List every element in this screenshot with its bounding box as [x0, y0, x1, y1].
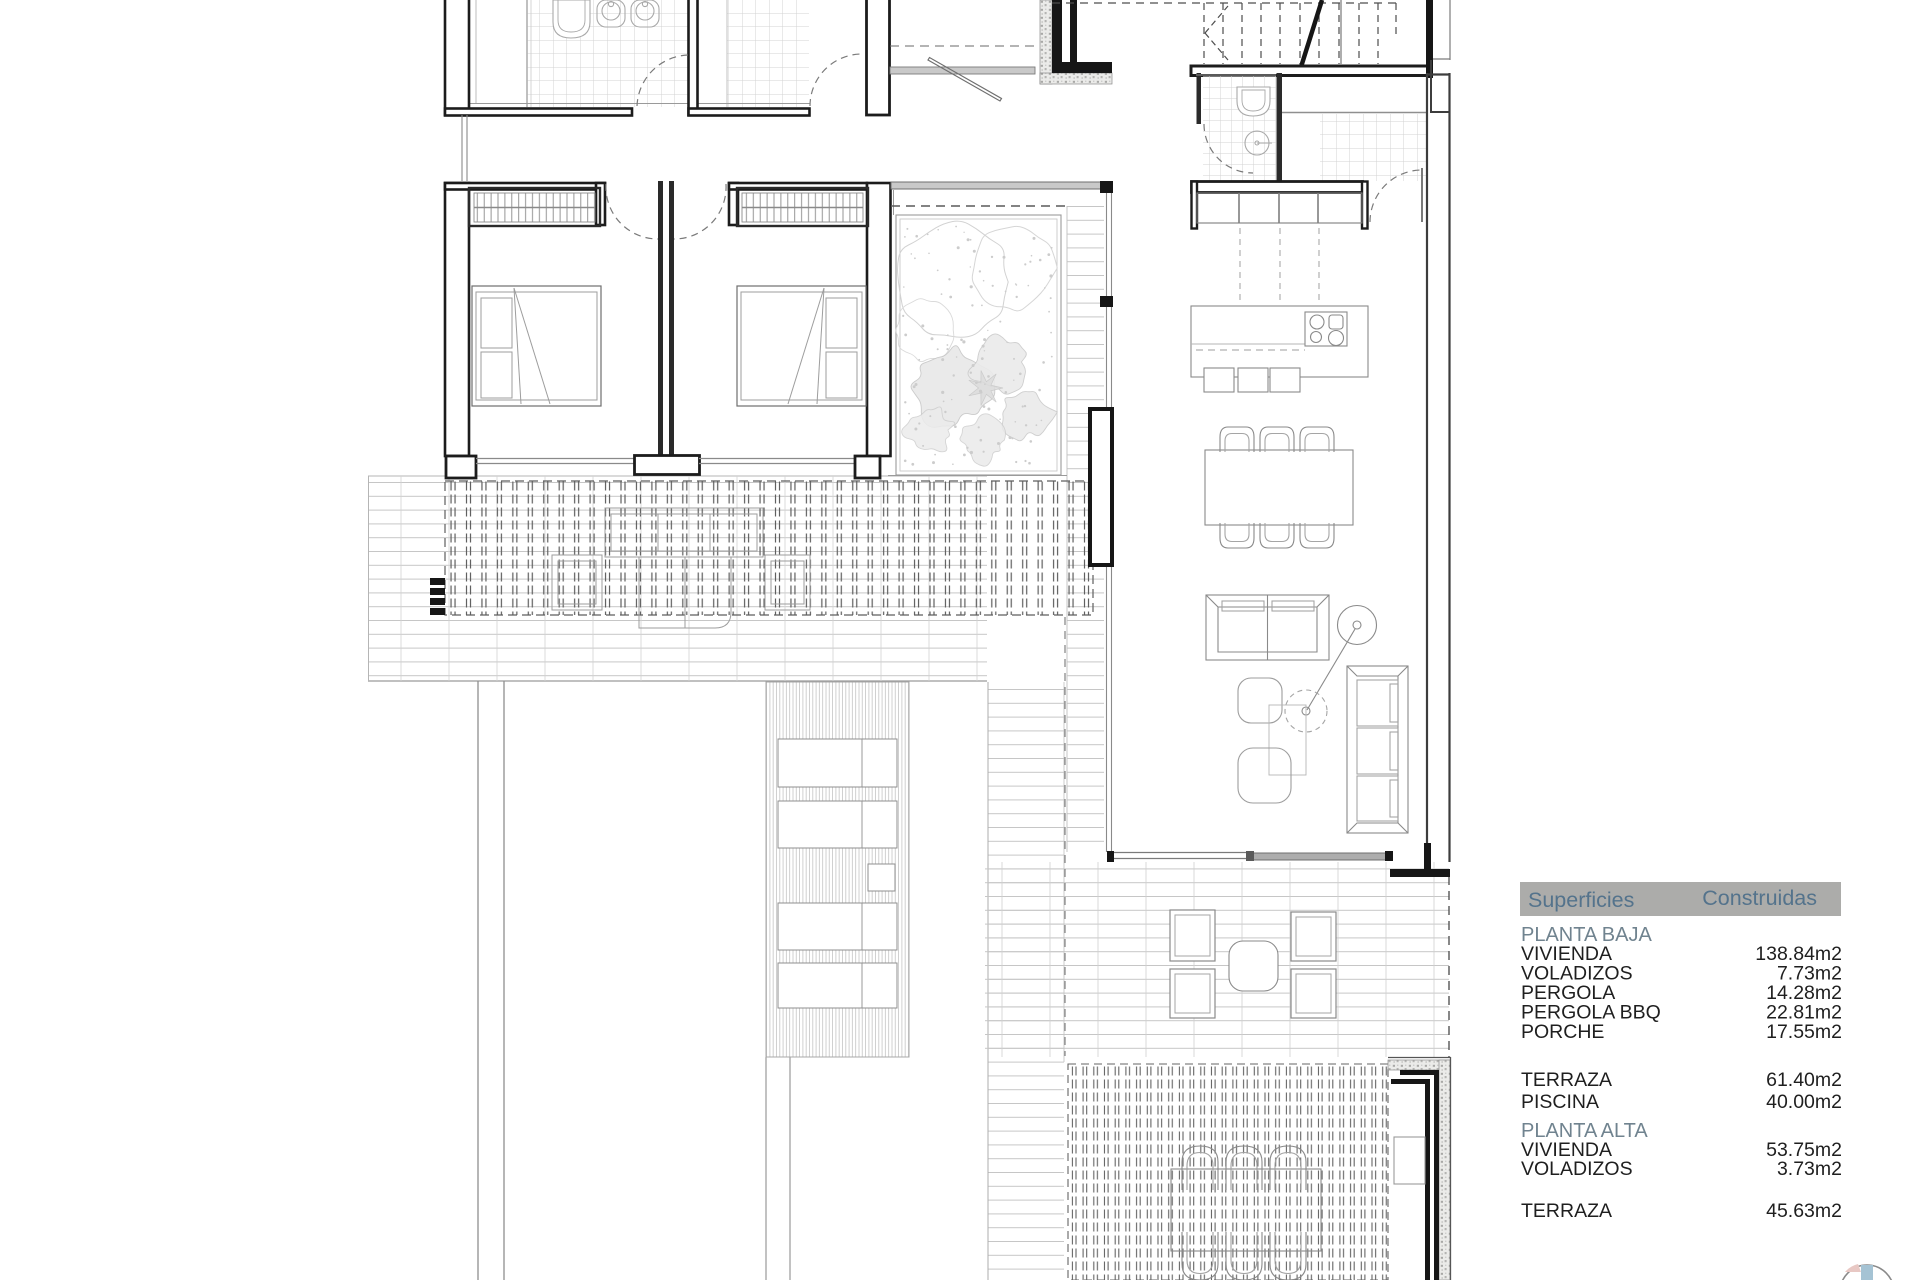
svg-text:Superficies: Superficies	[1528, 888, 1634, 912]
svg-text:Construidas: Construidas	[1702, 886, 1817, 910]
svg-text:PISCINA: PISCINA	[1521, 1091, 1599, 1113]
svg-text:VOLADIZOS: VOLADIZOS	[1521, 1158, 1633, 1180]
svg-text:17.55m2: 17.55m2	[1766, 1021, 1842, 1043]
svg-text:PORCHE: PORCHE	[1521, 1021, 1604, 1043]
svg-text:TERRAZA: TERRAZA	[1521, 1200, 1612, 1222]
svg-text:40.00m2: 40.00m2	[1766, 1091, 1842, 1113]
svg-text:45.63m2: 45.63m2	[1766, 1200, 1842, 1222]
svg-text:TERRAZA: TERRAZA	[1521, 1069, 1612, 1091]
svg-text:61.40m2: 61.40m2	[1766, 1069, 1842, 1091]
svg-text:3.73m2: 3.73m2	[1777, 1158, 1842, 1180]
